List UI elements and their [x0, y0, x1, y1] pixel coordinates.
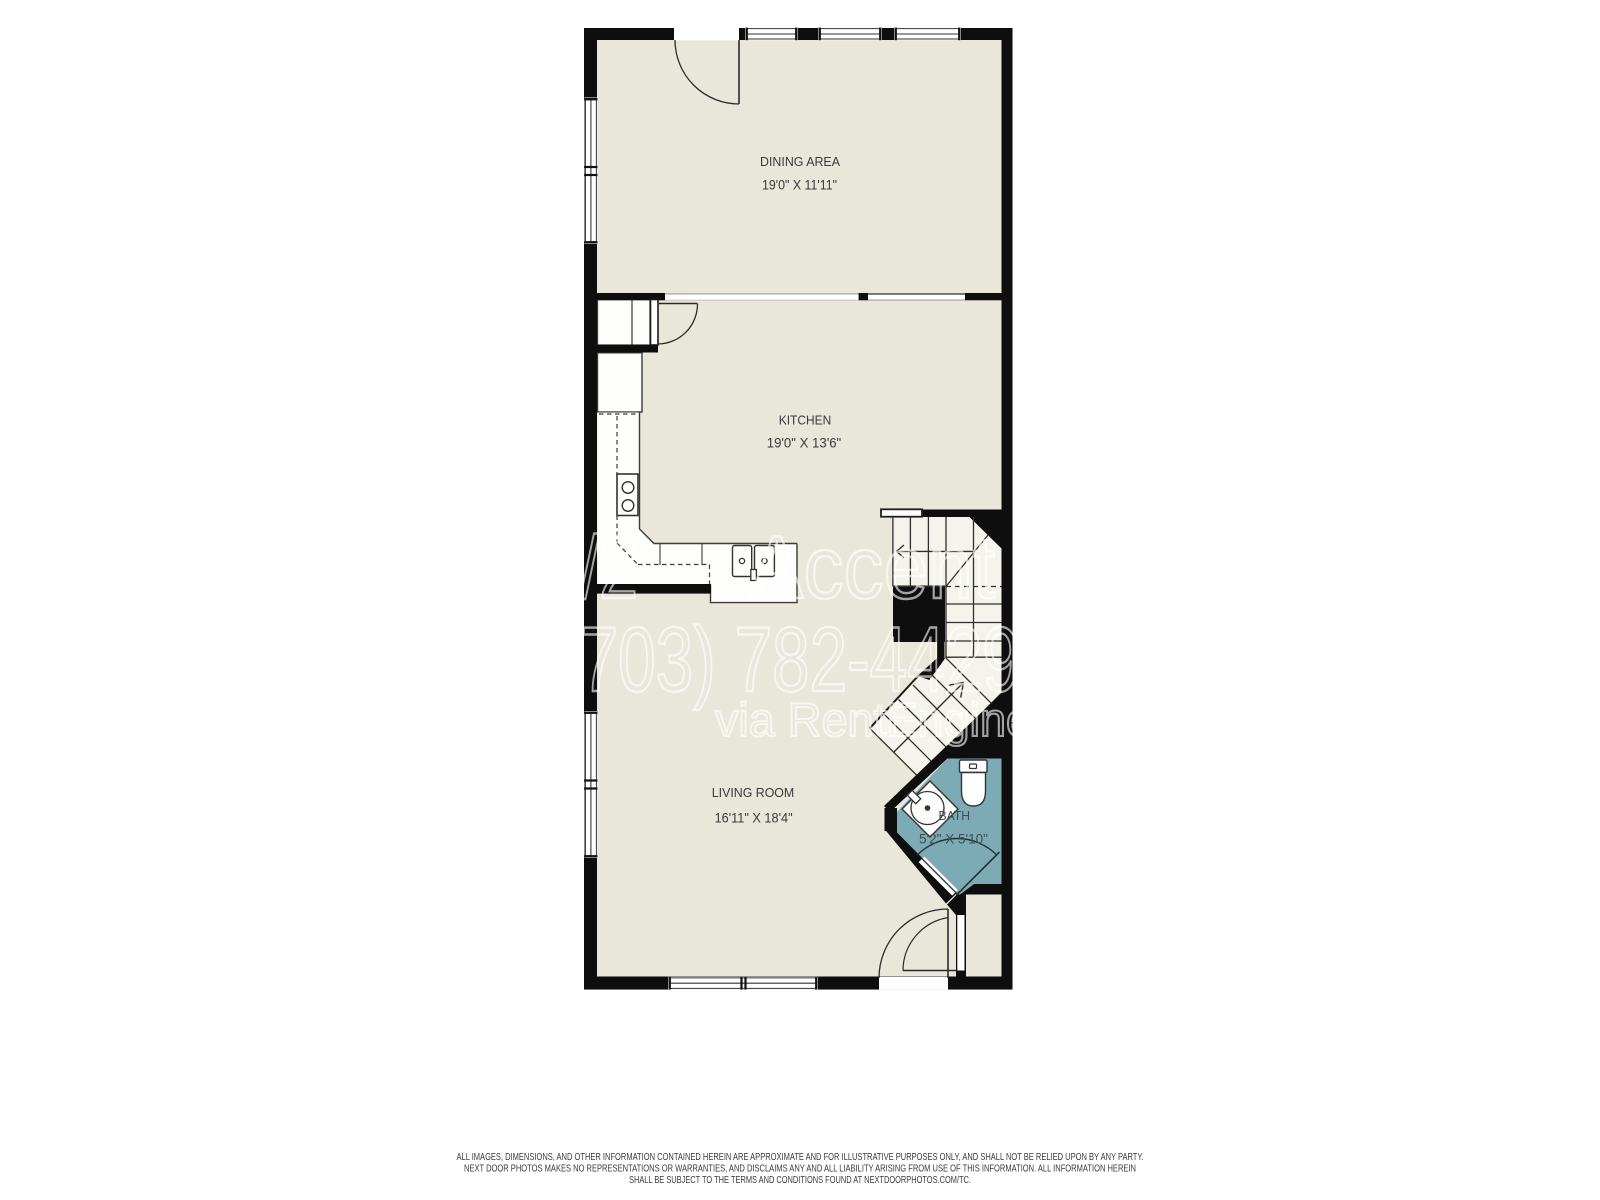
svg-text:via RentEngine: via RentEngine — [715, 693, 1032, 746]
svg-text:SHALL BE SUBJECT TO THE TERMS: SHALL BE SUBJECT TO THE TERMS AND CONDIT… — [629, 1174, 971, 1186]
svg-text:ALL IMAGES, DIMENSIONS, AND OT: ALL IMAGES, DIMENSIONS, AND OTHER INFORM… — [457, 1151, 1144, 1163]
svg-text:19'0" X 11'11": 19'0" X 11'11" — [762, 177, 837, 192]
svg-text:Accent: Accent — [750, 517, 995, 617]
svg-text:KITCHEN: KITCHEN — [779, 413, 832, 428]
svg-text:BATH: BATH — [939, 808, 971, 823]
svg-text:19'0" X 13'6": 19'0" X 13'6" — [767, 436, 842, 451]
svg-text:LIVING ROOM: LIVING ROOM — [712, 785, 795, 800]
svg-text:16'11" X 18'4": 16'11" X 18'4" — [715, 811, 793, 826]
svg-text:5'2" X 5'10": 5'2" X 5'10" — [919, 832, 988, 847]
svg-text:/2: /2 — [580, 517, 638, 617]
svg-text:NEXT DOOR PHOTOS MAKES NO REPR: NEXT DOOR PHOTOS MAKES NO REPRESENTATION… — [464, 1163, 1136, 1175]
svg-text:DINING AREA: DINING AREA — [760, 154, 840, 169]
